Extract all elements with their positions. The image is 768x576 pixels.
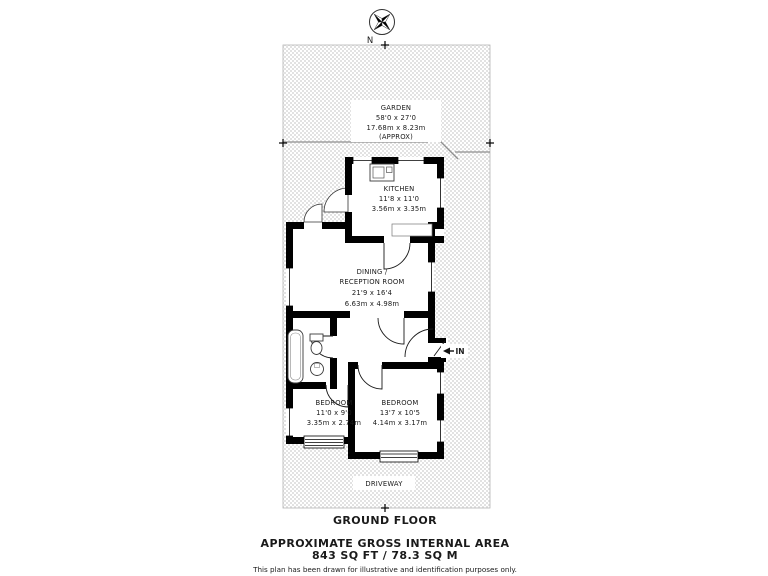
bedroom2-size-imperial: 13'7 x 10'5 [380,409,420,417]
driveway-name: DRIVEWAY [365,480,403,488]
garden-size-imperial: 58'0 x 27'0 [376,114,416,122]
floor-title: GROUND FLOOR [333,514,437,527]
dining-name-line1: DINING / [357,268,388,276]
entrance-in-text: IN [455,347,464,356]
compass: N [367,10,395,47]
garden-name: GARDEN [381,104,411,112]
basin-icon [311,363,324,376]
dining-size-metric: 6.63m x 4.98m [345,300,400,308]
garden-size-metric: 17.68m x 8.23m [367,124,426,132]
compass-north-label: N [367,36,373,46]
kitchen-size-metric: 3.56m x 3.35m [372,205,427,213]
entrance-label: IN [441,344,468,358]
footer: GROUND FLOOR APPROXIMATE GROSS INTERNAL … [252,514,517,574]
toilet-bowl-icon [311,342,322,355]
counter-recess-icon [392,224,432,236]
area-value: 843 SQ FT / 78.3 SQ M [312,549,458,562]
bedroom1-size-imperial: 11'0 x 9'0 [316,409,352,417]
garden-approx-note: (APPROX) [379,133,413,141]
kitchen-size-imperial: 11'8 x 11'0 [379,195,419,203]
dining-name-line2: RECEPTION ROOM [340,278,405,286]
garden-label: GARDEN 58'0 x 27'0 17.68m x 8.23m (APPRO… [351,100,441,142]
bedroom2-bay-window-icon [380,451,418,462]
floorplan-drawing: N [0,0,768,576]
driveway-label: DRIVEWAY [353,476,415,490]
bedroom1-name: BEDROOM [316,399,353,407]
bedroom2-name: BEDROOM [382,399,419,407]
dining-size-imperial: 21'9 x 16'4 [352,289,392,297]
disclaimer-text: This plan has been drawn for illustrativ… [252,565,517,574]
toilet-cistern-icon [310,334,323,341]
kitchen-name: KITCHEN [384,185,415,193]
floorplan-page: N [0,0,768,576]
bedroom1-bay-window-icon [304,436,344,448]
bedroom2-size-metric: 4.14m x 3.17m [373,419,428,427]
bedroom1-size-metric: 3.35m x 2.74m [307,419,362,427]
